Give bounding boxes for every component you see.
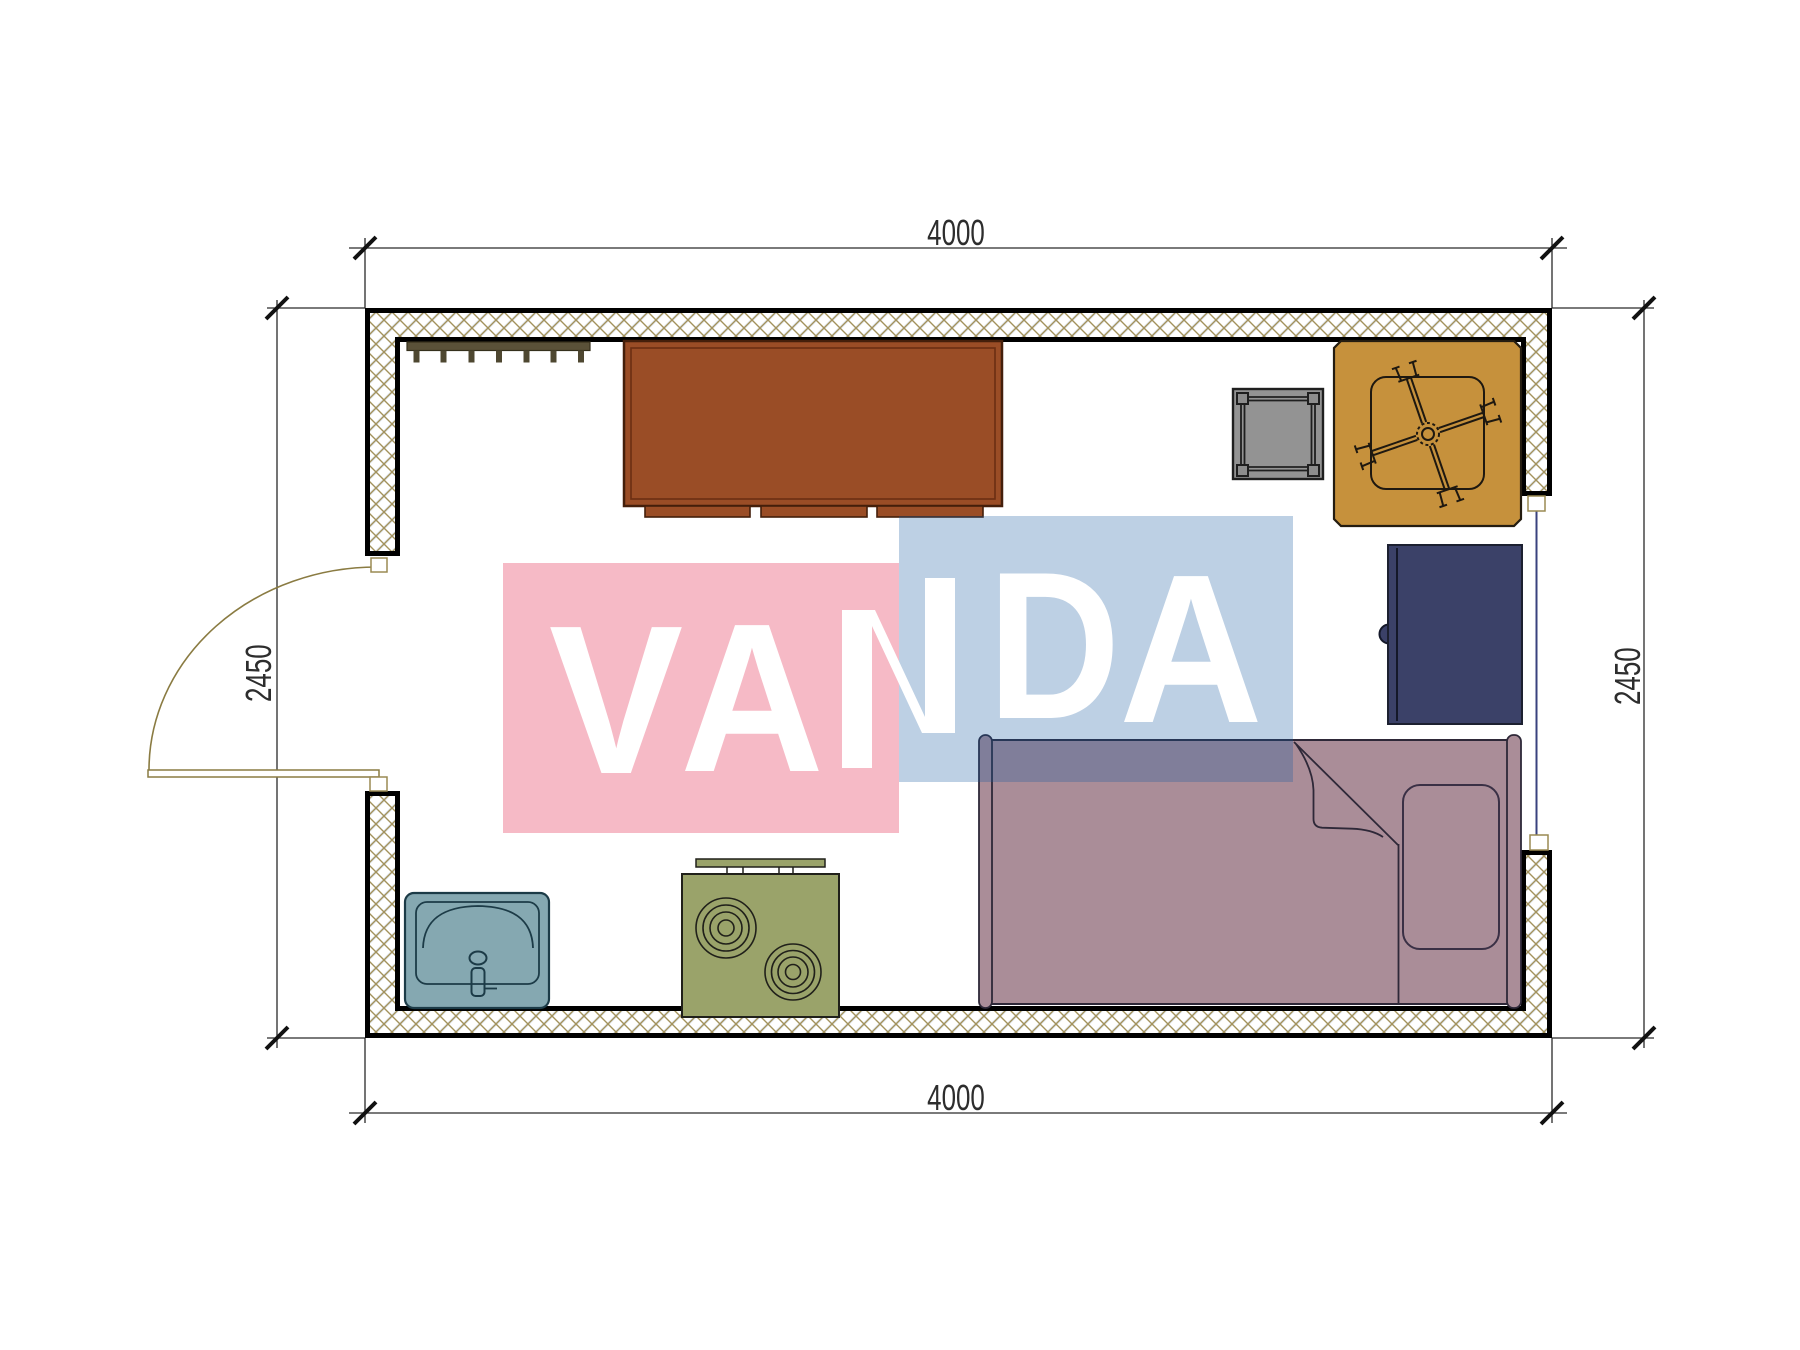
svg-text:2450: 2450 xyxy=(239,644,279,702)
svg-text:A: A xyxy=(1119,530,1263,767)
svg-text:2450: 2450 xyxy=(1608,647,1648,705)
svg-text:4000: 4000 xyxy=(927,213,985,253)
svg-text:V: V xyxy=(549,581,683,818)
svg-text:D: D xyxy=(988,527,1121,762)
svg-text:4000: 4000 xyxy=(927,1078,985,1118)
svg-text:A: A xyxy=(680,579,824,816)
